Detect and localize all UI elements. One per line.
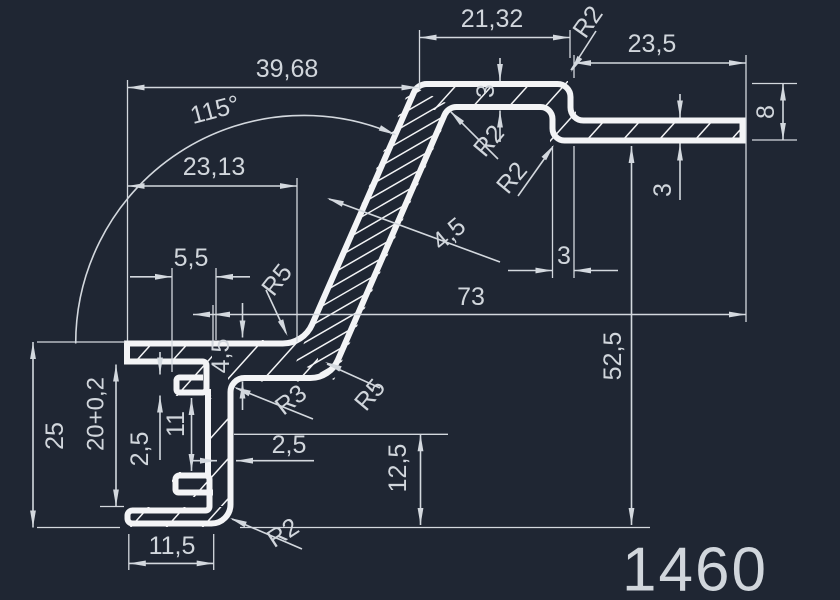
svg-text:4,5: 4,5 (207, 339, 235, 374)
svg-text:2,5: 2,5 (126, 432, 154, 467)
svg-text:11: 11 (162, 411, 190, 437)
svg-text:25: 25 (41, 422, 69, 450)
svg-text:39,68: 39,68 (256, 55, 319, 83)
svg-text:8: 8 (752, 105, 780, 119)
svg-text:52,5: 52,5 (599, 332, 627, 381)
svg-text:12,5: 12,5 (384, 444, 412, 493)
svg-text:23,5: 23,5 (628, 30, 677, 58)
svg-text:23,13: 23,13 (183, 153, 246, 181)
svg-text:21,32: 21,32 (461, 5, 524, 33)
svg-text:20+0,2: 20+0,2 (83, 377, 110, 451)
svg-text:5,5: 5,5 (174, 244, 209, 272)
svg-text:73: 73 (457, 283, 485, 311)
svg-text:3: 3 (557, 242, 571, 270)
svg-text:1460: 1460 (622, 536, 768, 600)
svg-text:3: 3 (649, 183, 677, 197)
svg-text:3: 3 (472, 84, 500, 98)
svg-text:2,5: 2,5 (272, 431, 307, 459)
svg-text:11,5: 11,5 (149, 532, 196, 560)
